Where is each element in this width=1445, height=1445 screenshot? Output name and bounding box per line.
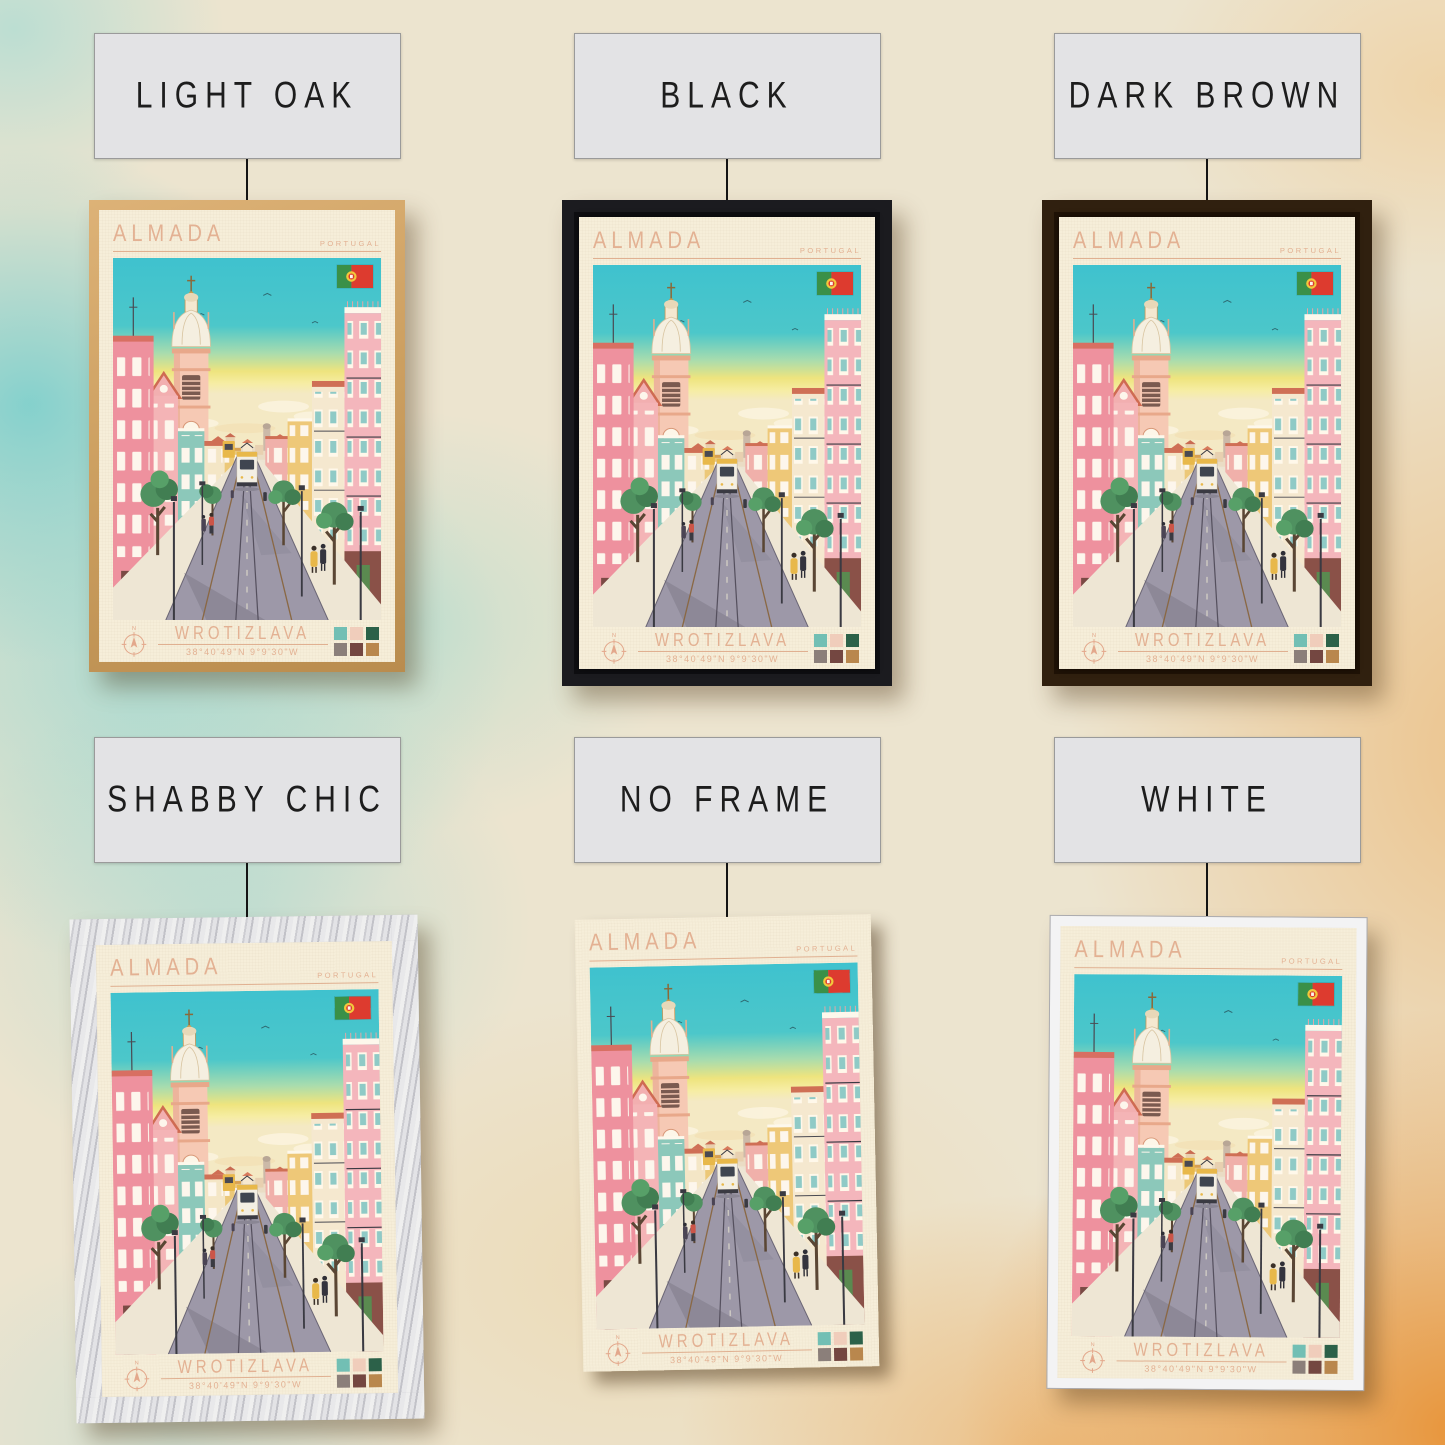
poster-artwork (111, 989, 384, 1355)
frame-label-card: SHABBY CHIC (94, 737, 401, 863)
travel-poster: ALMADA PORTUGAL (1057, 926, 1356, 1380)
color-palette (337, 1358, 382, 1388)
poster-coordinates: 38°40'49"N 9°9'30"W (151, 647, 334, 657)
poster-footer: N WROTIZLAVA 38°40'49"N 9°9'30"W (597, 1327, 866, 1370)
palette-swatch (814, 634, 827, 647)
palette-swatch (1326, 634, 1339, 647)
portugal-flag-icon (337, 265, 373, 288)
color-palette (1292, 1344, 1337, 1373)
poster-country-label: PORTUGAL (1281, 956, 1342, 965)
palette-swatch (818, 1332, 831, 1345)
subtitle-divider (1118, 651, 1288, 652)
frame-option-dark-brown: DARK BROWN ALMADA PORTUGAL (1042, 33, 1372, 686)
roof-railing (1308, 308, 1338, 315)
frame-option-white: WHITE ALMADA PORTUGAL (1042, 737, 1372, 1389)
palette-swatch (1310, 650, 1323, 663)
poster-footer: N WROTIZLAVA 38°40'49"N 9°9'30"W (1071, 1339, 1339, 1378)
hanging-line (1206, 159, 1208, 200)
color-palette (1294, 634, 1339, 663)
poster-header: ALMADA PORTUGAL (589, 924, 858, 961)
poster-city-title: ALMADA (113, 220, 225, 248)
poster-coordinates: 38°40'49"N 9°9'30"W (631, 654, 814, 664)
compass-icon: N (120, 1359, 154, 1393)
frame-label: SHABBY CHIC (107, 779, 387, 822)
picture-frame-white: ALMADA PORTUGAL (1047, 916, 1366, 1390)
travel-poster: ALMADA PORTUGAL (96, 941, 398, 1397)
palette-swatch (850, 1331, 863, 1344)
poster-caption: WROTIZLAVA 38°40'49"N 9°9'30"W (1109, 1342, 1292, 1375)
subtitle-divider (158, 644, 328, 645)
portugal-flag-icon (817, 272, 853, 295)
street-scene-illustration (113, 258, 381, 620)
palette-swatch (353, 1374, 366, 1387)
palette-swatch (814, 650, 827, 663)
compass-icon: N (1075, 1340, 1109, 1374)
palette-swatch (334, 643, 347, 656)
poster-country-label: PORTUGAL (317, 970, 378, 980)
street-scene-illustration (1072, 974, 1343, 1338)
palette-swatch (350, 627, 363, 640)
poster-footer: N WROTIZLAVA 38°40'49"N 9°9'30"W (116, 1354, 384, 1395)
frame-label-card: WHITE (1054, 737, 1361, 863)
svg-text:N: N (616, 1335, 620, 1341)
poster-caption: WROTIZLAVA 38°40'49"N 9°9'30"W (1111, 632, 1294, 664)
palette-swatch (1326, 650, 1339, 663)
palette-swatch (366, 643, 379, 656)
picture-frame-shabby-chic: ALMADA PORTUGAL (69, 915, 424, 1424)
palette-swatch (846, 650, 859, 663)
poster-caption: WROTIZLAVA 38°40'49"N 9°9'30"W (631, 632, 814, 664)
poster-country-label: PORTUGAL (1280, 246, 1341, 255)
poster-city-title: ALMADA (110, 953, 223, 982)
poster-subtitle: WROTIZLAVA (658, 1329, 794, 1353)
poster-subtitle: WROTIZLAVA (1133, 1340, 1268, 1362)
frame-option-black: BLACK ALMADA PORTUGAL (562, 33, 892, 686)
poster-subtitle: WROTIZLAVA (177, 1355, 313, 1378)
frame-label: NO FRAME (620, 779, 834, 822)
compass-icon: N (601, 1333, 636, 1368)
palette-swatch (1294, 634, 1307, 647)
palette-swatch (1309, 1345, 1322, 1358)
poster-city-title: ALMADA (589, 927, 702, 957)
compass-icon: N (1077, 631, 1111, 665)
svg-text:N: N (1092, 633, 1096, 639)
palette-swatch (1293, 1344, 1306, 1357)
portugal-flag-icon (1298, 982, 1334, 1005)
palette-swatch (818, 1348, 831, 1361)
palette-swatch (369, 1374, 382, 1387)
portugal-flag-icon (814, 969, 850, 993)
frame-option-shabby-chic: SHABBY CHIC ALMADA PORTUGAL (82, 737, 412, 1421)
poster-caption: WROTIZLAVA 38°40'49"N 9°9'30"W (154, 1357, 337, 1392)
poster-city-title: ALMADA (593, 227, 705, 255)
hanging-line (1206, 863, 1208, 917)
palette-swatch (830, 650, 843, 663)
palette-swatch (1292, 1360, 1305, 1373)
poster-artwork (1073, 265, 1341, 627)
travel-poster: ALMADA PORTUGAL (1059, 217, 1355, 669)
frame-option-light-oak: LIGHT OAK ALMADA PORTUGAL (82, 33, 412, 672)
palette-swatch (366, 627, 379, 640)
poster-subtitle: WROTIZLAVA (655, 630, 790, 651)
poster-caption: WROTIZLAVA 38°40'49"N 9°9'30"W (635, 1331, 819, 1367)
frame-label-card: NO FRAME (574, 737, 881, 863)
picture-frame-dark-brown: ALMADA PORTUGAL (1042, 200, 1372, 686)
svg-text:N: N (612, 633, 616, 639)
poster-coordinates: 38°40'49"N 9°9'30"W (154, 1379, 337, 1392)
compass-icon: N (117, 624, 151, 658)
palette-swatch (1325, 1345, 1338, 1358)
poster-footer: N WROTIZLAVA 38°40'49"N 9°9'30"W (1073, 630, 1341, 667)
palette-swatch (353, 1358, 366, 1371)
frame-label-card: DARK BROWN (1054, 33, 1361, 159)
unframed-poster: ALMADA PORTUGAL (575, 914, 880, 1372)
palette-swatch (369, 1358, 382, 1371)
poster-footer: N WROTIZLAVA 38°40'49"N 9°9'30"W (593, 630, 861, 667)
palette-swatch (337, 1374, 350, 1387)
hanging-line (726, 159, 728, 200)
frame-option-no-frame: NO FRAME ALMADA PORTUGAL (562, 737, 892, 1369)
palette-swatch (830, 634, 843, 647)
color-palette (814, 634, 859, 663)
poster-city-title: ALMADA (1073, 227, 1185, 255)
poster-subtitle: WROTIZLAVA (1135, 630, 1270, 651)
poster-footer: N WROTIZLAVA 38°40'49"N 9°9'30"W (113, 623, 381, 660)
palette-swatch (850, 1347, 863, 1360)
hanging-line (726, 863, 728, 917)
poster-coordinates: 38°40'49"N 9°9'30"W (1111, 654, 1294, 664)
picture-frame-black: ALMADA PORTUGAL (562, 200, 892, 686)
poster-coordinates: 38°40'49"N 9°9'30"W (1109, 1364, 1292, 1375)
poster-header: ALMADA PORTUGAL (1073, 227, 1341, 259)
poster-artwork (1072, 974, 1343, 1338)
frame-label-card: BLACK (574, 33, 881, 159)
street-scene-illustration (593, 265, 861, 627)
palette-swatch (846, 634, 859, 647)
poster-caption: WROTIZLAVA 38°40'49"N 9°9'30"W (151, 625, 334, 657)
poster-artwork (113, 258, 381, 620)
portugal-flag-icon (1297, 272, 1333, 295)
poster-country-label: PORTUGAL (320, 239, 381, 248)
poster-city-title: ALMADA (1074, 936, 1186, 964)
palette-swatch (1308, 1361, 1321, 1374)
street-scene-illustration (111, 989, 384, 1355)
travel-poster: ALMADA PORTUGAL (575, 914, 880, 1372)
palette-swatch (337, 1358, 350, 1371)
poster-artwork (593, 265, 861, 627)
poster-artwork (590, 962, 865, 1329)
poster-subtitle: WROTIZLAVA (175, 623, 310, 644)
frame-label-card: LIGHT OAK (94, 33, 401, 159)
color-palette (334, 627, 379, 656)
frame-label: LIGHT OAK (136, 75, 359, 118)
frame-label: WHITE (1141, 779, 1273, 822)
color-palette (818, 1331, 864, 1361)
poster-header: ALMADA PORTUGAL (593, 227, 861, 259)
poster-header: ALMADA PORTUGAL (110, 951, 378, 986)
hanging-line (246, 159, 248, 200)
travel-poster: ALMADA PORTUGAL (579, 217, 875, 669)
picture-frame-light-oak: ALMADA PORTUGAL (89, 200, 405, 672)
palette-swatch (834, 1332, 847, 1345)
watercolor-wall-background: LIGHT OAK ALMADA PORTUGAL (0, 0, 1445, 1445)
svg-text:N: N (1091, 1342, 1095, 1348)
palette-swatch (350, 643, 363, 656)
palette-swatch (1324, 1361, 1337, 1374)
subtitle-divider (638, 651, 808, 652)
travel-poster: ALMADA PORTUGAL (99, 210, 395, 662)
portugal-flag-icon (335, 996, 371, 1020)
street-scene-illustration (1073, 265, 1341, 627)
palette-swatch (1310, 634, 1323, 647)
compass-icon: N (597, 631, 631, 665)
poster-header: ALMADA PORTUGAL (1074, 936, 1342, 969)
poster-country-label: PORTUGAL (796, 943, 857, 953)
hanging-line (246, 863, 248, 917)
svg-text:N: N (135, 1361, 139, 1367)
palette-swatch (834, 1348, 847, 1361)
palette-swatch (334, 627, 347, 640)
poster-country-label: PORTUGAL (800, 246, 861, 255)
frame-label: DARK BROWN (1069, 75, 1346, 118)
poster-header: ALMADA PORTUGAL (113, 220, 381, 252)
poster-coordinates: 38°40'49"N 9°9'30"W (635, 1353, 818, 1367)
svg-text:N: N (132, 626, 136, 632)
palette-swatch (1294, 650, 1307, 663)
frame-label: BLACK (660, 75, 793, 118)
street-scene-illustration (590, 962, 865, 1329)
